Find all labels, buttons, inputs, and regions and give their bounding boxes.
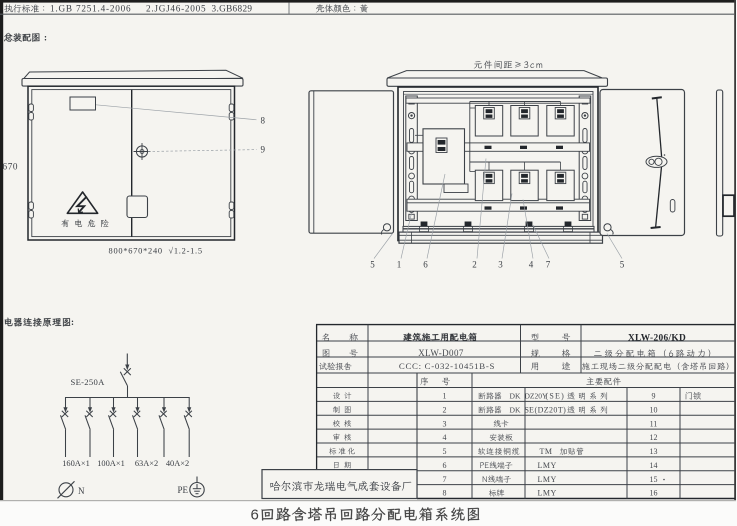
svg-text:3: 3: [443, 419, 447, 428]
svg-text::: :: [71, 317, 74, 327]
svg-text:DK: DK: [510, 392, 521, 401]
svg-text:8: 8: [261, 116, 266, 126]
svg-text:160A×1: 160A×1: [62, 459, 90, 468]
svg-text:SE: SE: [525, 406, 534, 415]
svg-text:XLW-206/KD: XLW-206/KD: [628, 333, 686, 343]
svg-text:6: 6: [251, 507, 259, 524]
svg-text:TM: TM: [540, 447, 553, 456]
svg-text:63A×2: 63A×2: [135, 459, 158, 468]
svg-text:2.JGJ46-2005: 2.JGJ46-2005: [146, 3, 206, 13]
svg-text:XLW-D007: XLW-D007: [418, 348, 464, 358]
svg-text:LMY: LMY: [538, 461, 557, 470]
svg-text:12: 12: [650, 433, 658, 442]
svg-text:11: 11: [650, 419, 658, 428]
svg-text:7: 7: [443, 475, 447, 484]
svg-text:3.GB6829: 3.GB6829: [212, 3, 253, 13]
svg-text:2: 2: [472, 260, 477, 270]
svg-text:LMY: LMY: [538, 489, 557, 498]
svg-text:4: 4: [529, 260, 534, 270]
svg-text:9: 9: [261, 145, 266, 155]
svg-text:(DZ20T): (DZ20T): [535, 406, 567, 415]
svg-text:6: 6: [423, 260, 428, 270]
svg-text:4: 4: [443, 433, 447, 442]
svg-text:SE-250A: SE-250A: [71, 377, 106, 387]
svg-text:1: 1: [443, 392, 447, 401]
svg-text:7: 7: [546, 260, 551, 270]
svg-text:6: 6: [443, 461, 447, 470]
svg-text:DK: DK: [510, 406, 521, 415]
svg-text:13: 13: [650, 447, 658, 456]
svg-text:2: 2: [443, 406, 447, 415]
svg-text:DZ20Y: DZ20Y: [525, 392, 548, 401]
svg-text:14: 14: [650, 461, 658, 470]
svg-text:CCC: C-032-10451B-S: CCC: C-032-10451B-S: [399, 361, 495, 371]
svg-text:16: 16: [650, 489, 658, 498]
svg-text:5: 5: [443, 447, 447, 456]
svg-text:100A×1: 100A×1: [97, 459, 125, 468]
svg-text:PE: PE: [178, 485, 189, 495]
svg-text:1.GB 7251.4-2006: 1.GB 7251.4-2006: [50, 3, 131, 13]
svg-text::: :: [44, 32, 47, 42]
svg-text:1: 1: [397, 260, 402, 270]
svg-text:15: 15: [650, 475, 658, 484]
svg-text:800*670*240 √1.2-1.5: 800*670*240 √1.2-1.5: [109, 247, 203, 256]
svg-text:N: N: [78, 486, 85, 496]
svg-text:8: 8: [443, 489, 447, 498]
svg-text:LMY: LMY: [538, 475, 557, 484]
svg-text:10: 10: [650, 406, 658, 415]
svg-text:9: 9: [652, 392, 656, 401]
svg-text:5: 5: [370, 260, 375, 270]
svg-text:40A×2: 40A×2: [166, 459, 189, 468]
svg-text:3: 3: [498, 260, 503, 270]
svg-text:(SE): (SE): [546, 392, 565, 401]
svg-text:670: 670: [3, 162, 19, 172]
svg-text:5: 5: [620, 260, 625, 270]
